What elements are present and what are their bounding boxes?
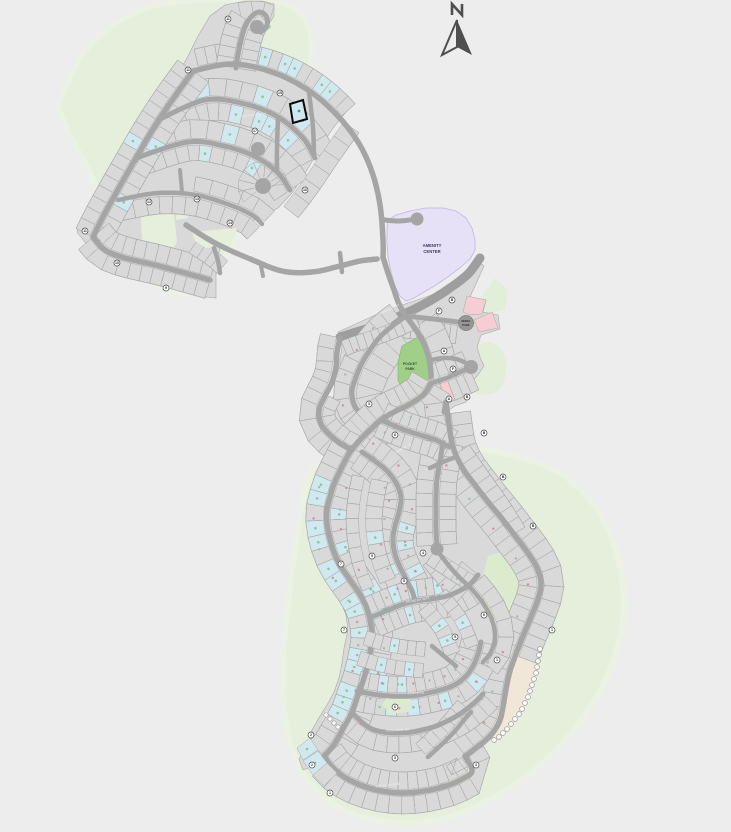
svg-text:11: 11	[186, 68, 190, 72]
svg-text:POCKET: POCKET	[403, 362, 418, 366]
svg-text:3: 3	[394, 756, 396, 760]
svg-text:6: 6	[394, 705, 396, 709]
svg-text:A: A	[443, 349, 446, 353]
svg-text:B: B	[451, 298, 454, 302]
svg-text:B: B	[466, 395, 469, 399]
svg-text:15: 15	[278, 91, 282, 95]
svg-text:5: 5	[454, 635, 456, 639]
svg-text:B: B	[532, 524, 535, 528]
svg-text:2: 2	[310, 733, 312, 737]
svg-text:6: 6	[483, 613, 485, 617]
svg-text:10: 10	[115, 261, 119, 265]
svg-text:13: 13	[195, 197, 199, 201]
svg-text:8: 8	[394, 433, 396, 437]
svg-text:AMENITY: AMENITY	[423, 243, 442, 248]
svg-text:7: 7	[340, 562, 342, 566]
svg-text:7: 7	[343, 628, 345, 632]
svg-text:MODEL: MODEL	[461, 319, 471, 323]
svg-text:12: 12	[147, 200, 151, 204]
svg-text:9: 9	[165, 286, 167, 290]
svg-text:2: 2	[311, 763, 313, 767]
svg-text:4: 4	[422, 551, 424, 555]
svg-text:14: 14	[228, 221, 232, 225]
svg-text:B: B	[483, 431, 486, 435]
svg-text:17: 17	[253, 129, 257, 133]
svg-text:3: 3	[475, 763, 477, 767]
svg-text:1: 1	[496, 658, 498, 662]
svg-text:PARK: PARK	[462, 323, 469, 327]
svg-text:3: 3	[368, 402, 370, 406]
svg-text:5: 5	[371, 554, 373, 558]
svg-text:B: B	[502, 475, 505, 479]
svg-text:1: 1	[551, 628, 553, 632]
svg-text:TERCERA: TERCERA	[408, 691, 425, 696]
svg-text:11: 11	[226, 17, 230, 21]
svg-text:5: 5	[403, 579, 405, 583]
svg-text:16: 16	[303, 188, 307, 192]
svg-text:CENTER: CENTER	[423, 249, 440, 254]
svg-text:A: A	[448, 397, 451, 401]
svg-text:1: 1	[329, 791, 331, 795]
svg-text:PARK: PARK	[405, 367, 415, 371]
svg-text:11: 11	[83, 229, 87, 233]
